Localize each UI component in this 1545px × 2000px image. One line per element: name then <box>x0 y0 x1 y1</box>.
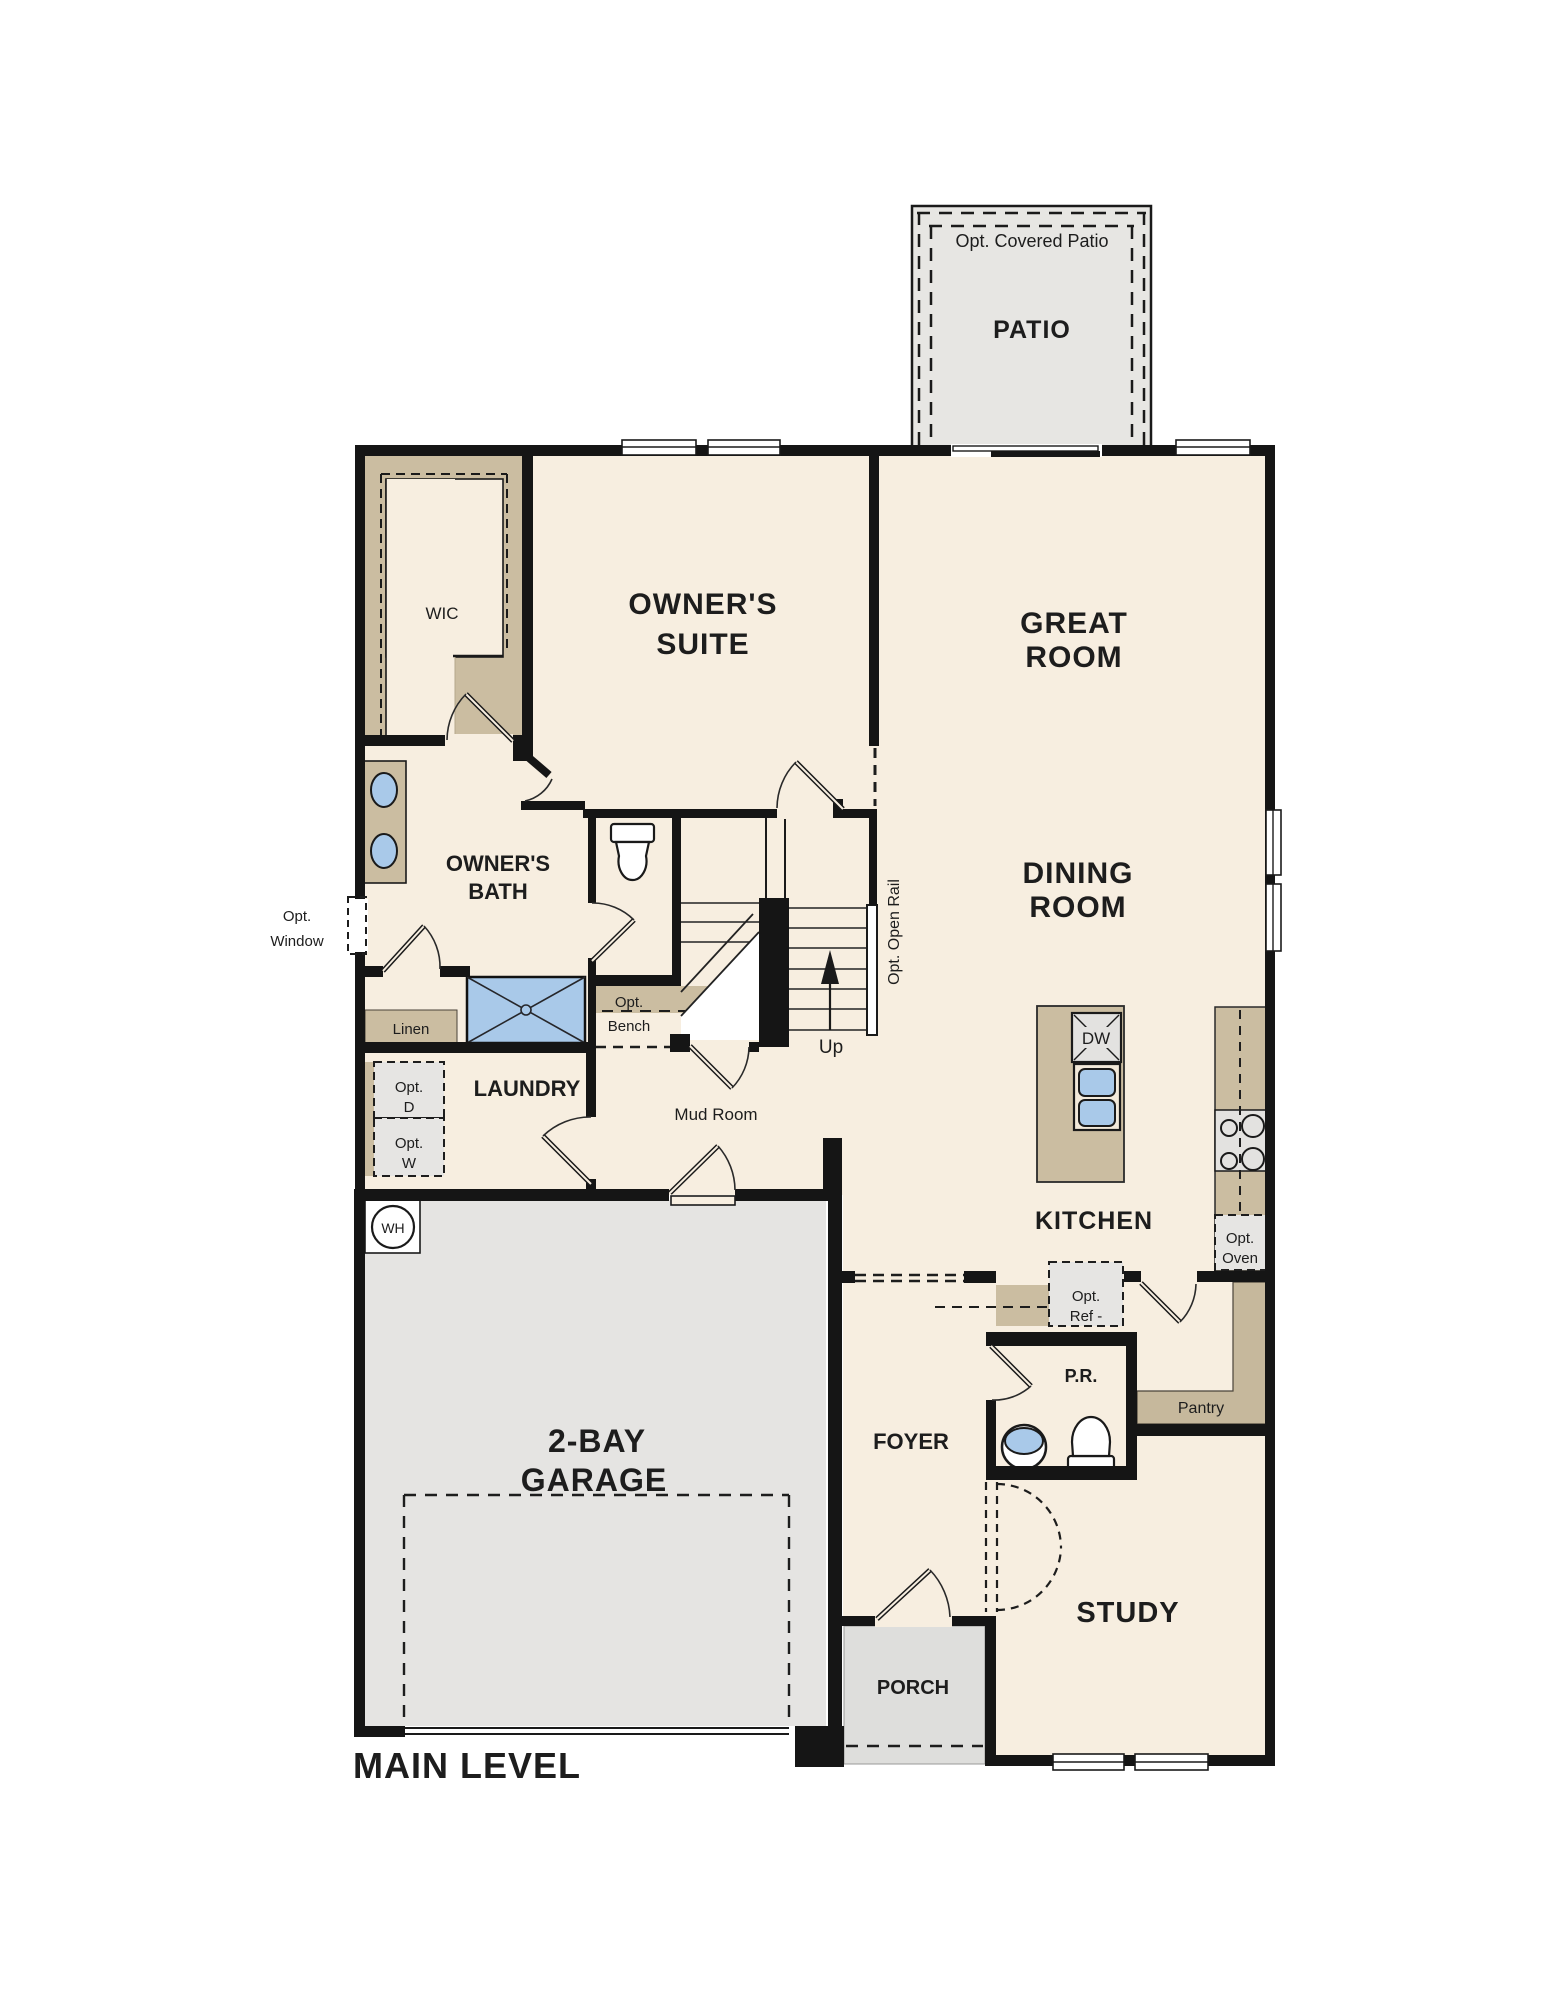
svg-text:PORCH: PORCH <box>877 1677 949 1699</box>
svg-text:Opt.: Opt. <box>283 908 311 925</box>
svg-text:Opt.: Opt. <box>395 1079 423 1096</box>
svg-text:PATIO: PATIO <box>993 316 1071 344</box>
svg-text:MAIN LEVEL: MAIN LEVEL <box>353 1745 581 1786</box>
svg-text:Opt.: Opt. <box>395 1135 423 1152</box>
svg-text:Oven: Oven <box>1222 1250 1258 1267</box>
svg-text:Linen: Linen <box>393 1021 430 1038</box>
svg-text:Pantry: Pantry <box>1178 1400 1224 1417</box>
svg-text:GARAGE: GARAGE <box>521 1462 667 1498</box>
svg-text:D: D <box>404 1099 415 1116</box>
svg-text:Opt. Covered Patio: Opt. Covered Patio <box>955 231 1108 251</box>
svg-text:ROOM: ROOM <box>1025 641 1122 674</box>
svg-text:OWNER'S: OWNER'S <box>446 851 550 876</box>
svg-text:2-BAY: 2-BAY <box>548 1423 646 1459</box>
svg-text:STUDY: STUDY <box>1076 1597 1179 1629</box>
svg-text:BATH: BATH <box>468 879 527 904</box>
svg-text:ROOM: ROOM <box>1029 891 1126 924</box>
svg-text:WH: WH <box>381 1220 404 1236</box>
svg-text:KITCHEN: KITCHEN <box>1035 1207 1153 1235</box>
svg-text:OWNER'S: OWNER'S <box>628 588 777 621</box>
svg-text:Window: Window <box>270 933 324 950</box>
svg-text:Opt.: Opt. <box>1072 1288 1100 1305</box>
svg-text:SUITE: SUITE <box>656 628 749 661</box>
svg-text:Opt. Open Rail: Opt. Open Rail <box>886 879 903 985</box>
svg-text:LAUNDRY: LAUNDRY <box>474 1076 581 1101</box>
svg-text:GREAT: GREAT <box>1020 607 1128 640</box>
svg-text:DW: DW <box>1082 1029 1110 1048</box>
svg-text:Bench: Bench <box>608 1018 651 1035</box>
svg-text:P.R.: P.R. <box>1065 1366 1098 1386</box>
svg-text:Ref -: Ref - <box>1070 1308 1103 1325</box>
svg-text:Opt.: Opt. <box>1226 1230 1254 1247</box>
svg-text:FOYER: FOYER <box>873 1429 949 1454</box>
svg-text:Up: Up <box>819 1037 843 1058</box>
svg-text:DINING: DINING <box>1023 857 1134 890</box>
svg-text:WIC: WIC <box>425 604 458 623</box>
svg-text:W: W <box>402 1155 417 1172</box>
svg-text:Mud Room: Mud Room <box>674 1105 757 1124</box>
svg-text:Opt.: Opt. <box>615 994 643 1011</box>
